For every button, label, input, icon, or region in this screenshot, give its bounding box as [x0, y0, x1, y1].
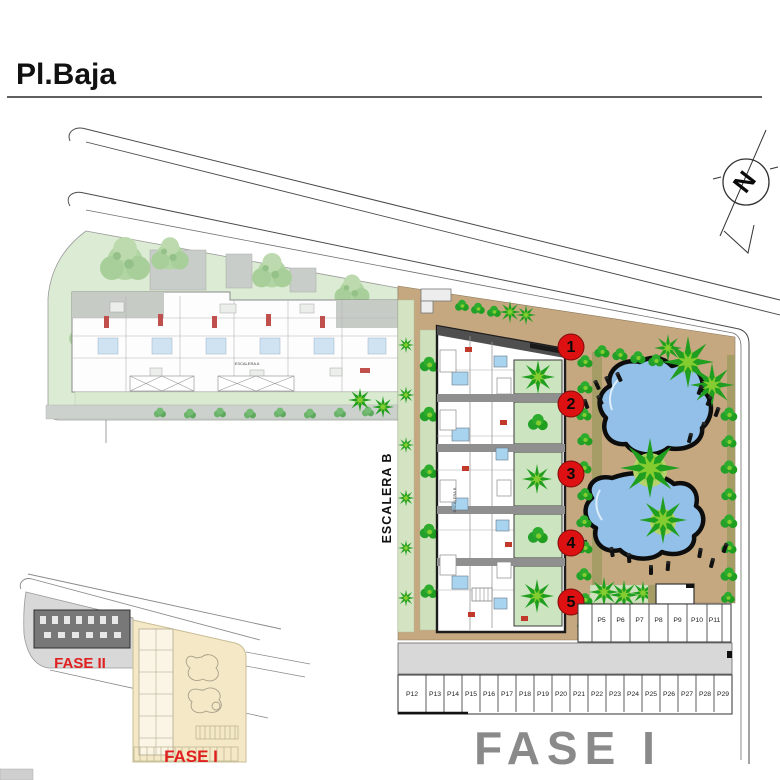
- marker-2: 2: [558, 391, 584, 417]
- parking-stall-label: P18: [519, 691, 531, 698]
- marker-4: 4: [558, 530, 584, 556]
- parking-stall-label: P9: [673, 617, 682, 624]
- parking-stall-label: P24: [627, 691, 639, 698]
- svg-text:2: 2: [567, 396, 576, 413]
- parking-stall-label: P17: [501, 691, 513, 698]
- parking-stall-label: P11: [709, 617, 721, 624]
- parking-stall-label: P29: [717, 691, 729, 698]
- escalera-b-label: ESCALERA B: [380, 453, 394, 544]
- parking-stall-label: P7: [635, 617, 644, 624]
- parking-stall-label: P21: [573, 691, 585, 698]
- marker-3: 3: [558, 461, 584, 487]
- parking-stall-label: P16: [483, 691, 495, 698]
- svg-text:1: 1: [567, 339, 576, 356]
- fase2-building: ESCALERA A: [72, 292, 398, 392]
- marker-1: 1: [558, 334, 584, 360]
- parking-stall-label: P5: [597, 617, 606, 624]
- parking-stall-label: P27: [681, 691, 693, 698]
- internal-road-strip: [398, 643, 732, 674]
- parking-stall-label: P28: [699, 691, 711, 698]
- parking-stall-label: P23: [609, 691, 621, 698]
- svg-text:3: 3: [567, 466, 576, 483]
- parking-stall-label: P14: [447, 691, 459, 698]
- page-title: Pl.Baja: [16, 58, 116, 91]
- parking-stall-label: P19: [537, 691, 549, 698]
- site-plan-svg: Pl.Baja N: [0, 0, 780, 780]
- north-arrow: N: [713, 130, 778, 253]
- escalera-a-label: ESCALERA A: [235, 361, 260, 366]
- parking-row-p12-p29: P12 P13 P14 P15 P16 P17 P18 P19 P20 P21 …: [398, 675, 732, 714]
- parking-stall-label: P13: [429, 691, 441, 698]
- site-plan-page: Pl.Baja N: [0, 0, 780, 780]
- inset-fase2-label: FASE II: [54, 655, 106, 672]
- parking-stall-label: P26: [663, 691, 675, 698]
- parking-stall-label: P15: [465, 691, 477, 698]
- svg-text:4: 4: [567, 535, 576, 552]
- fase1-building: ESCALERA B: [437, 326, 565, 632]
- inset-fase2-area: FASE II: [24, 592, 133, 672]
- parking-stall-label: P10: [691, 617, 703, 624]
- fase2-parcel: ESCALERA A: [46, 231, 398, 443]
- parking-stall-label: P25: [645, 691, 657, 698]
- pond-upper: [600, 358, 711, 454]
- parking-stall-label: P6: [616, 617, 625, 624]
- inset-fase1-area: FASE I: [133, 620, 246, 766]
- escalera-b-inner-label: ESCALERA B: [452, 487, 457, 512]
- inset-corner-strip: [0, 769, 33, 780]
- inset-fase1-label: FASE I: [164, 747, 218, 766]
- parking-stall-label: P22: [591, 691, 603, 698]
- inset-map: FASE II: [0, 574, 310, 780]
- svg-text:5: 5: [567, 594, 576, 611]
- parking-stall-label: P12: [406, 691, 418, 698]
- fase1-phase-label: FASE I: [474, 722, 662, 774]
- parking-stall-label: P8: [654, 617, 663, 624]
- parking-row-p5-p11: P5 P6 P7 P8 P9 P10 P11: [578, 604, 731, 642]
- parking-stall-label: P20: [555, 691, 567, 698]
